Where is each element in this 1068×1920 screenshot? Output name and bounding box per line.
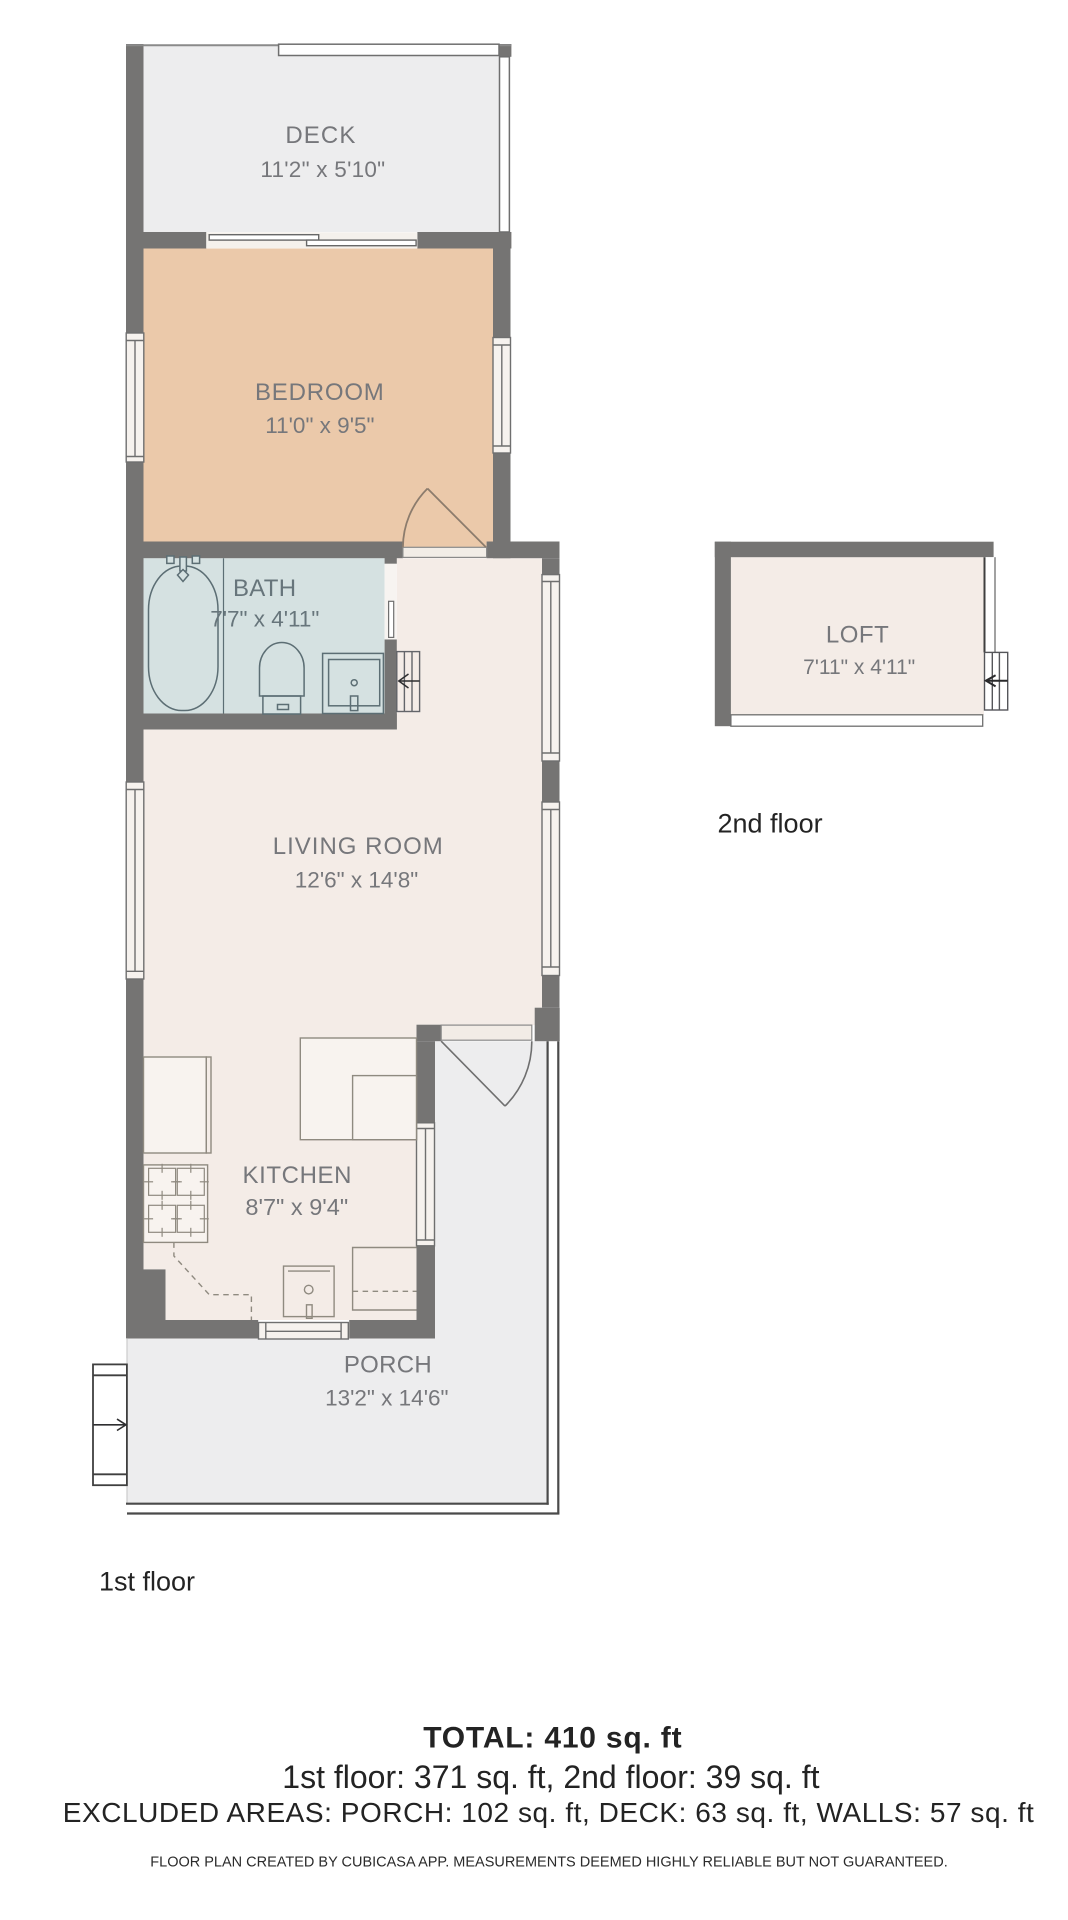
svg-text:1st floor: 1st floor: [99, 1567, 195, 1597]
svg-text:11'2" x 5'10": 11'2" x 5'10": [260, 157, 385, 182]
svg-text:PORCH: PORCH: [344, 1352, 432, 1379]
svg-text:LOFT: LOFT: [826, 622, 890, 649]
svg-text:TOTAL: 410 sq. ft: TOTAL: 410 sq. ft: [423, 1722, 682, 1755]
svg-text:12'6" x 14'8": 12'6" x 14'8": [295, 868, 418, 893]
svg-text:7'11" x 4'11": 7'11" x 4'11": [803, 656, 915, 679]
svg-text:BATH: BATH: [233, 575, 296, 602]
svg-text:13'2" x 14'6": 13'2" x 14'6": [325, 1386, 448, 1411]
svg-text:DECK: DECK: [285, 122, 356, 149]
svg-text:BEDROOM: BEDROOM: [255, 379, 385, 406]
svg-text:LIVING ROOM: LIVING ROOM: [273, 833, 444, 860]
svg-text:7'7" x 4'11": 7'7" x 4'11": [210, 607, 319, 632]
svg-text:11'0" x 9'5": 11'0" x 9'5": [265, 413, 374, 438]
svg-text:FLOOR PLAN CREATED BY CUBICASA: FLOOR PLAN CREATED BY CUBICASA APP. MEAS…: [150, 1855, 947, 1871]
svg-text:1st floor: 371 sq. ft, 2nd flo: 1st floor: 371 sq. ft, 2nd floor: 39 sq.…: [282, 1759, 819, 1795]
svg-text:8'7" x 9'4": 8'7" x 9'4": [245, 1194, 348, 1220]
svg-text:KITCHEN: KITCHEN: [243, 1162, 353, 1189]
svg-text:2nd floor: 2nd floor: [718, 809, 823, 839]
svg-text:EXCLUDED AREAS: PORCH: 102 sq.: EXCLUDED AREAS: PORCH: 102 sq. ft, DECK:…: [63, 1797, 1035, 1828]
